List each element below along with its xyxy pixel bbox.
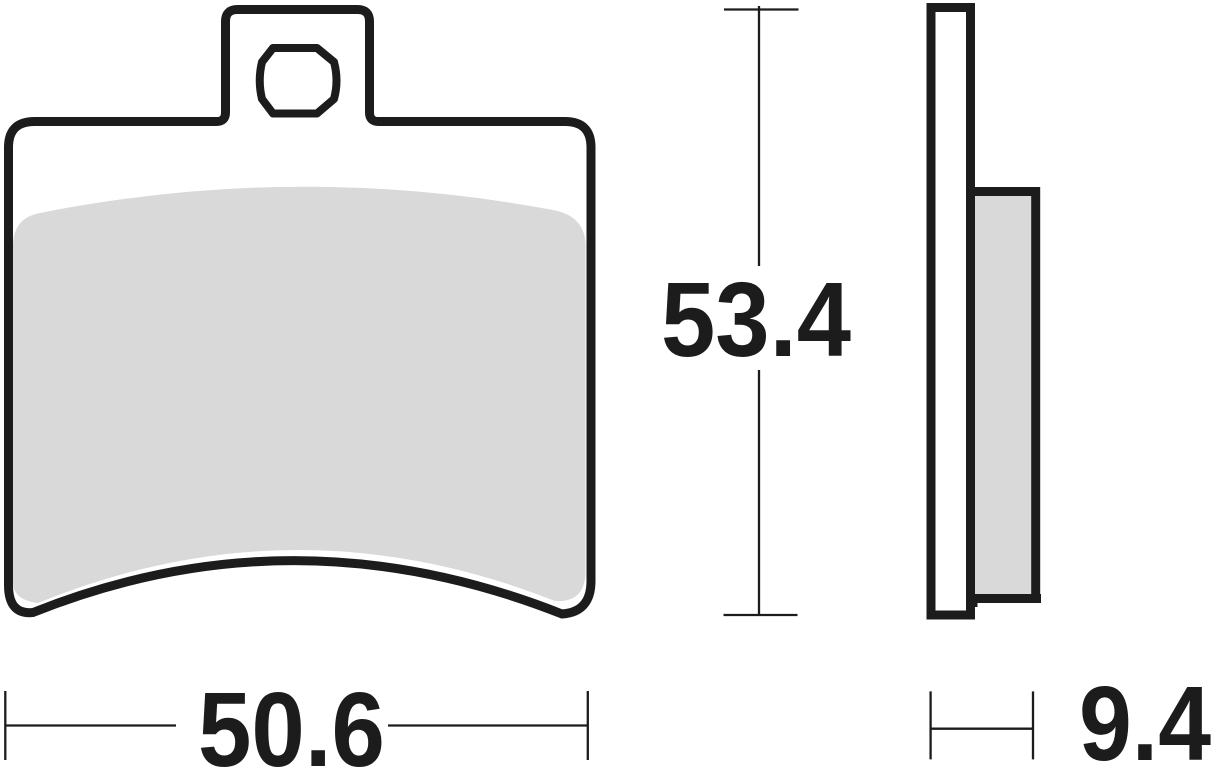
svg-text:50.6: 50.6 bbox=[198, 671, 385, 768]
svg-text:9.4: 9.4 bbox=[1079, 665, 1211, 768]
svg-text:53.4: 53.4 bbox=[661, 261, 851, 379]
